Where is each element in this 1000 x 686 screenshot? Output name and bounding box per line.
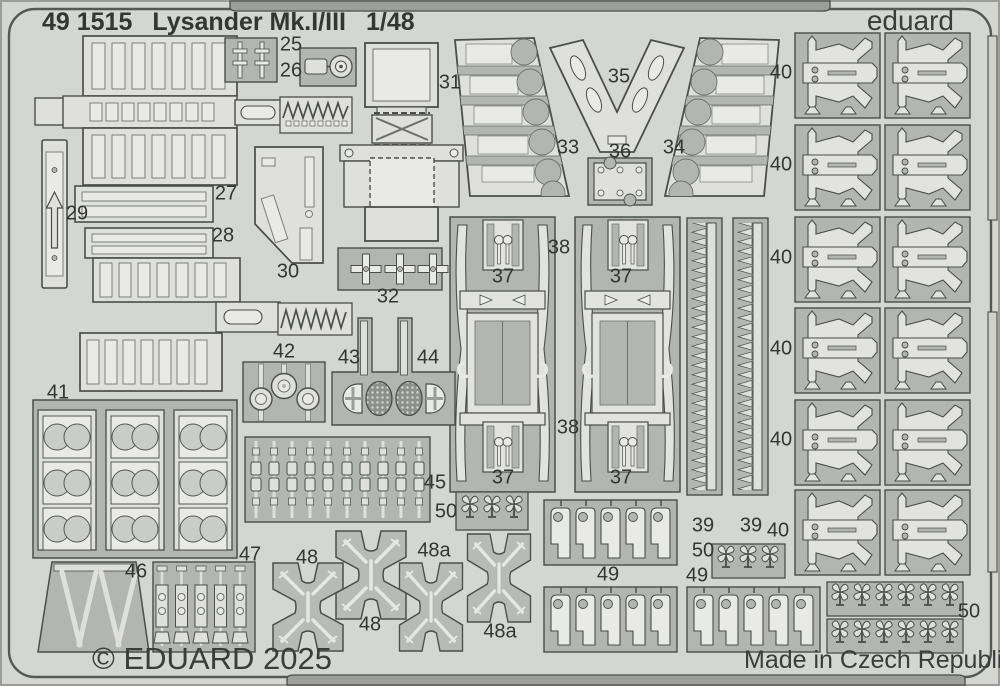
part-number-label: 31 — [439, 72, 461, 95]
part-number-label: 35 — [608, 66, 630, 89]
part-50-strip-a — [456, 492, 528, 530]
part-number-label: 47 — [239, 544, 261, 567]
part-number-label: 40 — [770, 62, 792, 85]
part-49-plate-top — [544, 500, 677, 565]
part-38-spat-assembly-left — [450, 217, 555, 492]
copyright-notice: © EDUARD 2025 — [92, 641, 332, 677]
part-number-label: 48a — [417, 540, 450, 563]
part-48-cruciform-a — [273, 563, 343, 651]
part-number-label: 49 — [597, 564, 619, 587]
part-number-label: 40 — [770, 247, 792, 270]
part-number-label: 40 — [770, 338, 792, 361]
part-35-vee-brace — [550, 40, 684, 152]
sheet-title: 49 1515 Lysander Mk.I/III 1/48 — [42, 8, 415, 37]
made-in-notice: Made in Czech Republic — [744, 646, 1000, 675]
part-number-label: 40 — [767, 520, 789, 543]
part-42-ring-plate — [243, 362, 325, 422]
part-number-label: 32 — [377, 286, 399, 309]
part-49-plate-bottom-left — [544, 587, 677, 652]
part-number-label: 37 — [610, 467, 632, 490]
part-number-label: 50 — [958, 601, 980, 624]
part-number-label: 39 — [692, 515, 714, 538]
fret-sheet-graphic — [0, 0, 1000, 686]
part-number-label: 44 — [417, 347, 439, 370]
part-number-label: 50 — [692, 540, 714, 563]
product-code: 49 1515 — [42, 8, 132, 37]
part-39-comb-strip-left — [687, 218, 722, 495]
part-number-label: 48 — [359, 614, 381, 637]
part-30-bracket-plate — [255, 147, 323, 263]
part-spring-strip-top — [280, 97, 352, 133]
part-number-label: 49 — [686, 565, 708, 588]
part-41-louvre-panels — [33, 400, 237, 558]
part-50-strip-b — [712, 544, 785, 578]
part-34-cowl-panel — [662, 38, 782, 205]
part-spring-strip-lower — [278, 303, 352, 335]
part-36-bracket — [588, 157, 652, 206]
part-number-label: 42 — [273, 341, 295, 364]
part-25-plate — [225, 38, 277, 82]
part-48a-cruciform-a — [400, 563, 463, 651]
part-number-label: 37 — [610, 266, 632, 289]
part-32-cross-plate — [338, 248, 448, 290]
part-number-label: 38 — [557, 417, 579, 440]
product-scale: 1/48 — [366, 8, 415, 37]
part-number-label: 40 — [770, 154, 792, 177]
part-47-strip-plate — [153, 562, 255, 652]
part-48a-cruciform-b — [468, 534, 531, 622]
part-number-label: 48 — [296, 547, 318, 570]
part-number-label: 33 — [557, 137, 579, 160]
part-48-cruciform-b — [336, 531, 406, 619]
part-number-label: 46 — [125, 561, 147, 584]
part-number-label: 38 — [548, 237, 570, 260]
photo-etch-fret-sheet: 49 1515 Lysander Mk.I/III 1/48 eduard © … — [0, 0, 1000, 686]
part-number-label: 40 — [770, 429, 792, 452]
product-title: Lysander Mk.I/III — [152, 8, 346, 37]
part-26-grommet — [300, 48, 356, 86]
part-33-cowl-panel — [452, 38, 572, 205]
part-number-label: 36 — [609, 141, 631, 164]
part-number-label: 30 — [277, 261, 299, 284]
part-49-plate-bottom-right — [687, 587, 820, 652]
part-number-label: 29 — [66, 203, 88, 226]
part-45-pin-plate — [245, 437, 430, 522]
part-number-label: 26 — [280, 60, 302, 83]
part-29-strip — [42, 140, 67, 288]
part-number-label: 41 — [47, 382, 69, 405]
part-number-label: 34 — [663, 137, 685, 160]
part-number-label: 25 — [280, 34, 302, 57]
part-number-label: 37 — [492, 467, 514, 490]
part-number-label: 37 — [492, 266, 514, 289]
part-number-label: 27 — [215, 183, 237, 206]
part-38-spat-assembly-right — [575, 217, 680, 492]
part-number-label: 28 — [212, 225, 234, 248]
brand-logotype: eduard — [867, 5, 954, 37]
part-number-label: 39 — [740, 515, 762, 538]
frame-bottom-tab — [287, 675, 965, 685]
part-number-label: 48a — [483, 621, 516, 644]
part-number-label: 43 — [338, 347, 360, 370]
frame-right-rail-lower — [988, 312, 997, 572]
part-40-bracket-grid — [795, 33, 970, 575]
part-39-comb-strip-right — [733, 218, 768, 495]
part-number-label: 50 — [435, 501, 457, 524]
part-number-label: 45 — [424, 472, 446, 495]
part-50-strip-c — [827, 582, 963, 616]
frame-right-rail-upper — [988, 36, 997, 220]
